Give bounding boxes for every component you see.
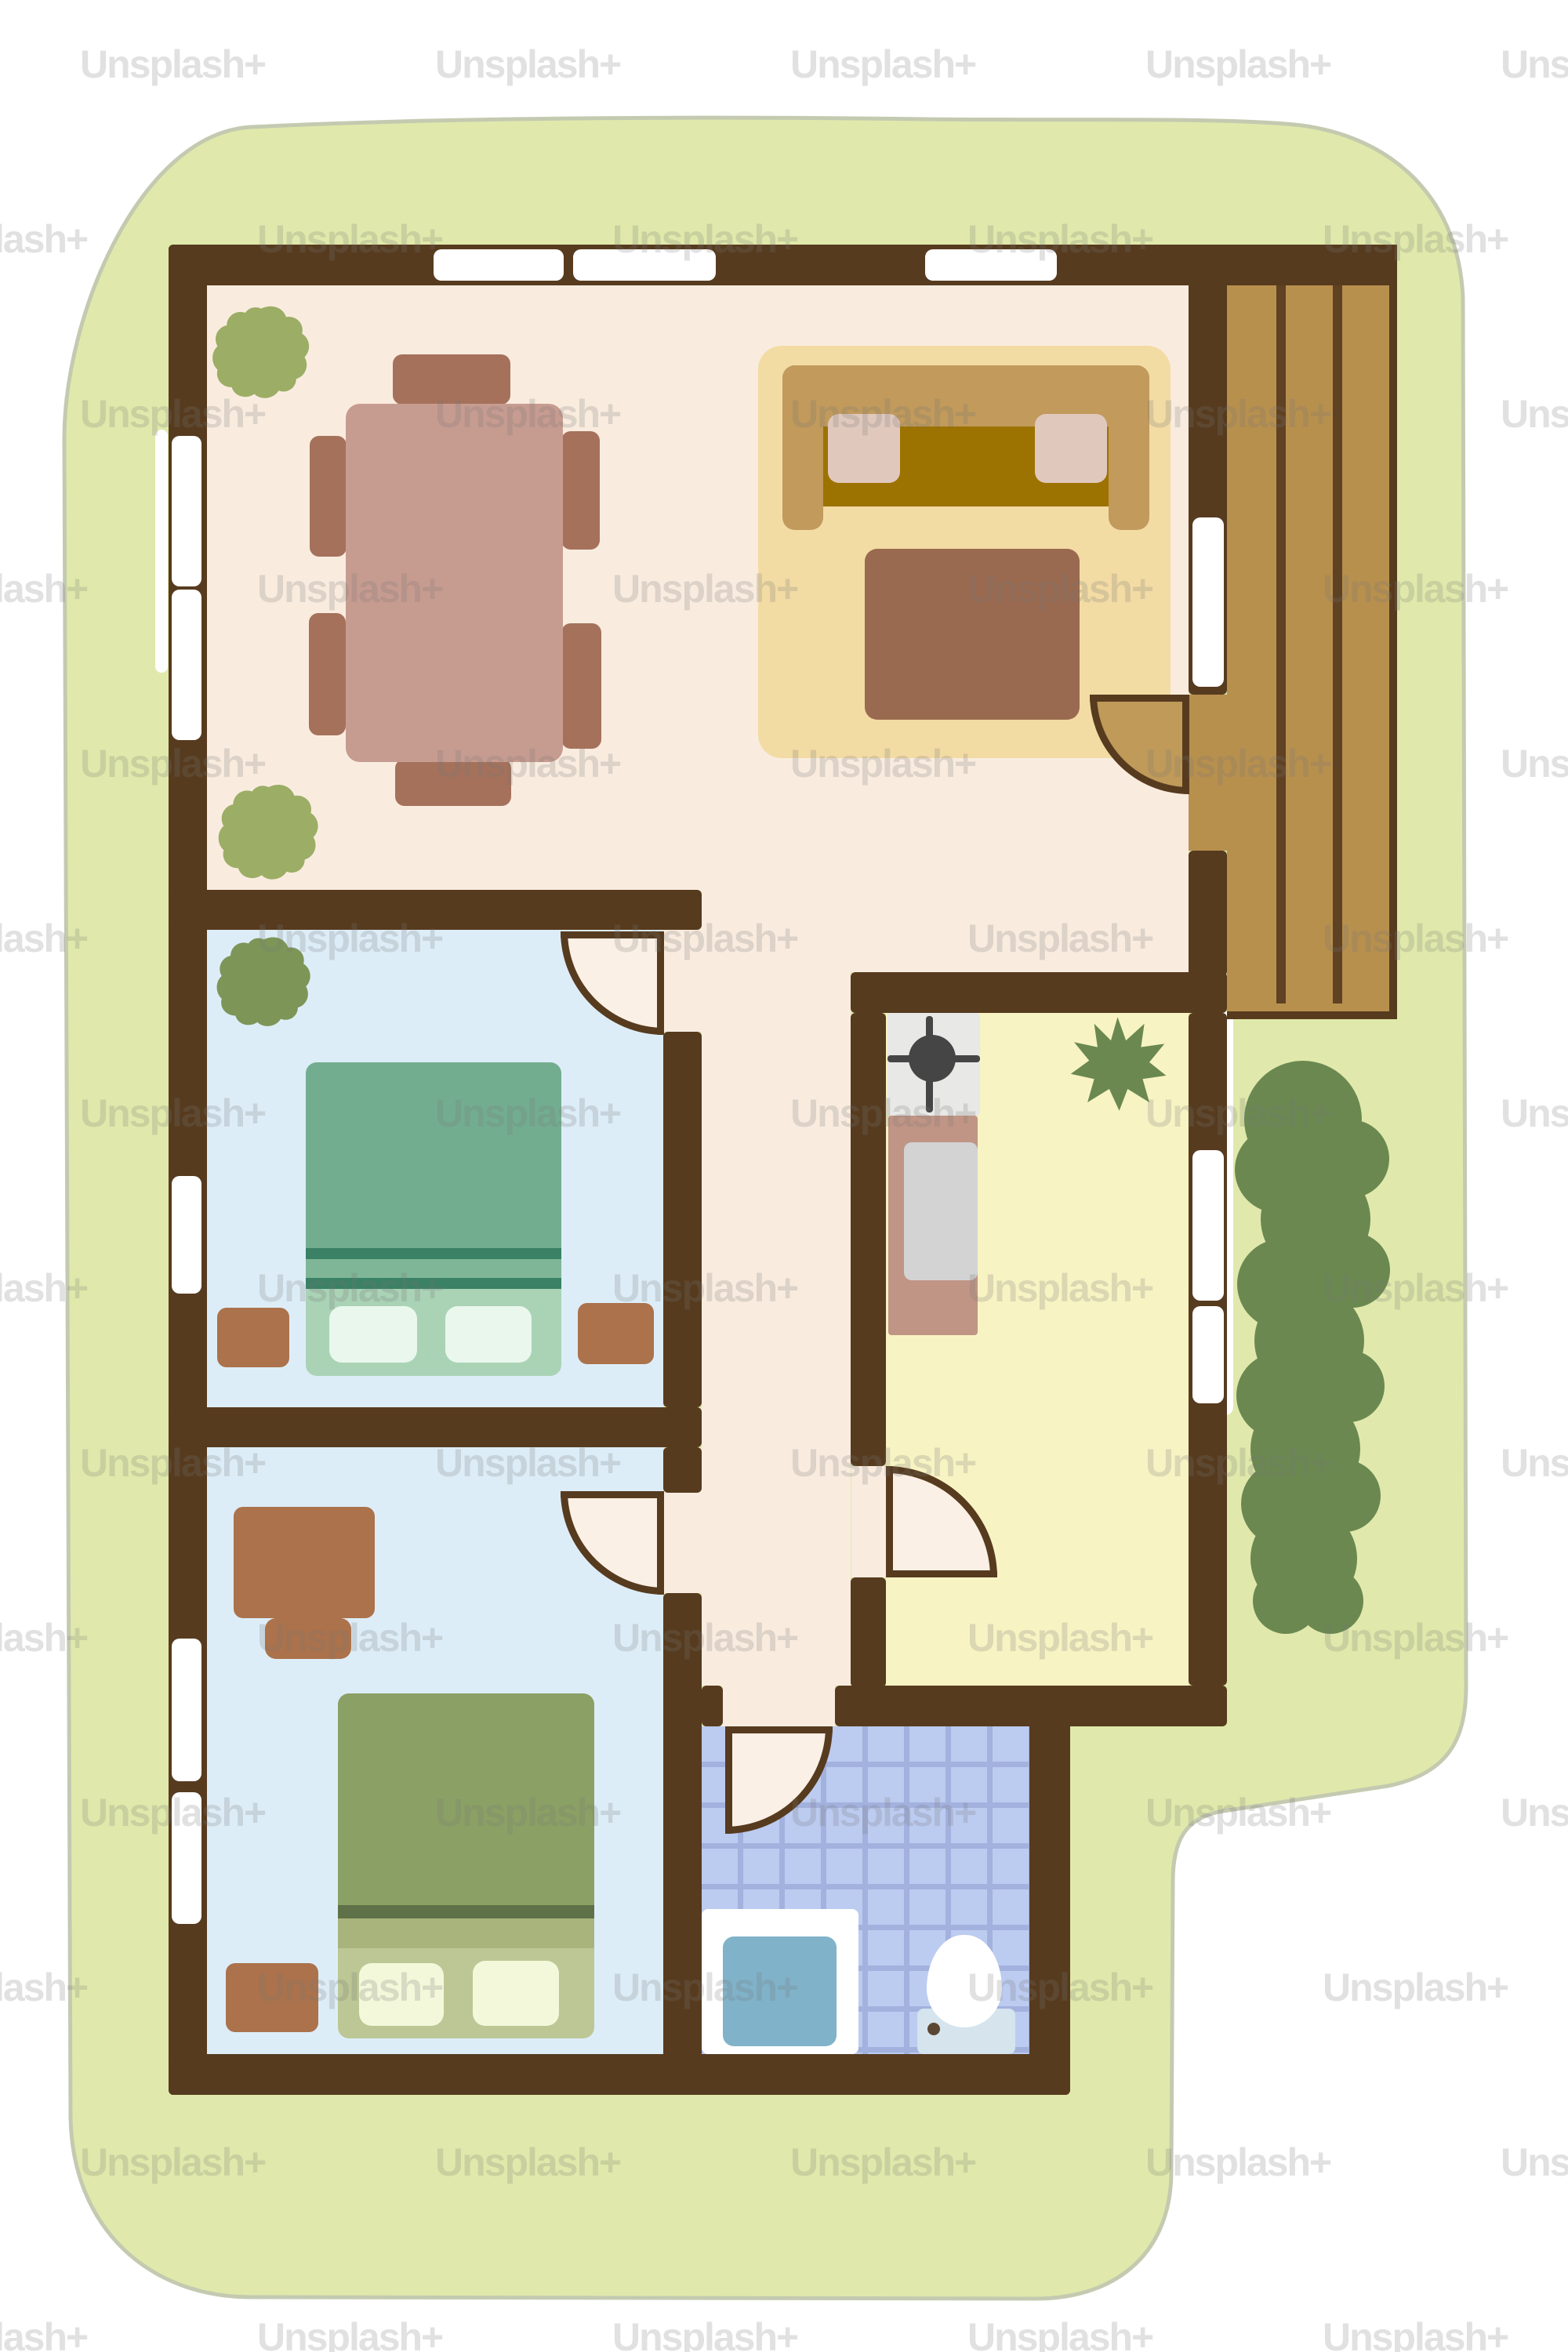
dining-chair-top <box>393 354 510 405</box>
sofa-arm-left <box>782 365 823 530</box>
sofa-cushion-right <box>1035 414 1107 483</box>
watermark: Unsplash+ <box>0 2314 87 2352</box>
dining-chair-right-1 <box>561 431 600 550</box>
watermark: Unsplash+ <box>1145 2140 1330 2185</box>
bed-pillow <box>359 1963 444 2026</box>
floor-plan-illustration: Unsplash+Unsplash+Unsplash+Unsplash+Unsp… <box>0 0 1568 2352</box>
stove <box>887 1013 980 1116</box>
watermark: Unsplash+ <box>1323 1615 1508 1661</box>
bed-pillow <box>473 1961 559 2026</box>
burner <box>909 1035 956 1082</box>
dining-chair-right-2 <box>561 623 601 749</box>
watermark: Unsplash+ <box>0 1965 87 2010</box>
watermark: Unsplash+ <box>1145 1790 1330 1835</box>
dining-plant-2 <box>216 779 321 882</box>
window-kitchen-right-1 <box>1192 1150 1224 1301</box>
sofa-arm-right <box>1109 365 1149 530</box>
dining-table <box>346 404 563 762</box>
window-dining-left-1 <box>172 436 201 586</box>
watermark: Unsplash+ <box>1501 1440 1568 1486</box>
watermark: Unsplash+ <box>790 2140 975 2185</box>
deck-plank-line <box>1333 245 1342 1004</box>
bed-band <box>338 1918 594 1948</box>
watermark: Unsplash+ <box>0 1615 87 1661</box>
bathroom-sink <box>702 1909 858 2054</box>
dining-chair-left-2 <box>309 613 346 735</box>
wall-bathroom-right <box>1029 1686 1070 2095</box>
kitchen-counter <box>888 1116 978 1335</box>
watermark: Unsplash+ <box>612 2314 797 2352</box>
deck <box>1227 245 1397 1019</box>
watermark: Unsplash+ <box>1501 2140 1568 2185</box>
hallway-floor <box>702 930 851 1686</box>
bed-stripe <box>306 1248 561 1259</box>
wall-bedroom1-hallway <box>663 1032 702 1407</box>
bed-pillow <box>329 1306 417 1363</box>
nightstand <box>217 1308 289 1367</box>
wall-kitchen-left-stub <box>851 1577 886 1687</box>
wall-bedroom2-hallway-stub <box>663 1447 702 1493</box>
bedroom-2-doorway <box>664 1491 702 1593</box>
desk-chair <box>265 1618 351 1659</box>
watermark: Unsplash+ <box>1323 1965 1508 2010</box>
bed-stripe <box>338 1905 594 1918</box>
watermark: Unsplash+ <box>1501 1790 1568 1835</box>
wall-bedroom2-bathroom <box>663 1593 702 2095</box>
window-bedroom2-left-1 <box>172 1639 201 1781</box>
window-dining-left-2 <box>172 590 201 740</box>
bathroom-basin <box>723 1936 837 2046</box>
nightstand <box>578 1303 654 1364</box>
watermark: Unsplash+ <box>80 2140 265 2185</box>
dining-chair-bottom <box>395 759 511 806</box>
bedroom-1-plant <box>210 931 318 1029</box>
watermark: Unsplash+ <box>80 42 265 87</box>
sofa-cushion-left <box>828 414 900 483</box>
watermark: Unsplash+ <box>1501 391 1568 437</box>
bed-stripe <box>306 1278 561 1289</box>
watermark: Unsplash+ <box>1501 1091 1568 1136</box>
watermark: Unsplash+ <box>0 216 87 262</box>
bathroom-doorway <box>721 1686 835 1726</box>
watermark: Unsplash+ <box>435 42 620 87</box>
bed-band <box>306 1259 561 1278</box>
wall-kitchen-top <box>851 972 1227 1013</box>
watermark: Unsplash+ <box>1501 741 1568 786</box>
deck-plank-line <box>1276 245 1286 1004</box>
desk <box>234 1507 375 1618</box>
watermark: Unsplash+ <box>790 42 975 87</box>
watermark: Unsplash+ <box>1145 42 1330 87</box>
watermark: Unsplash+ <box>967 2314 1152 2352</box>
bedroom-1-doorway <box>664 930 702 1032</box>
kitchen-doorway <box>851 1466 886 1577</box>
watermark: Unsplash+ <box>0 1265 87 1311</box>
window-kitchen-right-2 <box>1192 1306 1224 1403</box>
watermark: Unsplash+ <box>0 566 87 612</box>
wall-bedroom1-bedroom2 <box>169 1407 702 1447</box>
window-living-right <box>1192 517 1224 687</box>
deck-doorway <box>1189 695 1227 851</box>
bed-blanket <box>338 1693 594 1905</box>
watermark: Unsplash+ <box>435 2140 620 2185</box>
wall-dining-bedroom1 <box>169 890 702 930</box>
kitchen-plant <box>1065 1014 1171 1114</box>
dining-plant-1 <box>210 300 312 401</box>
wall-bathroom-top-stub <box>702 1686 723 1726</box>
bed-pillow <box>445 1306 532 1363</box>
watermark: Unsplash+ <box>1323 2314 1508 2352</box>
kitchen-sink-inset <box>904 1142 978 1280</box>
toilet-flush-button <box>927 2023 940 2035</box>
watermark: Unsplash+ <box>0 916 87 961</box>
bed-blanket <box>306 1062 561 1248</box>
tv-unit <box>865 549 1080 720</box>
wall-right-living-lower <box>1189 851 1227 976</box>
window-top-3 <box>925 249 1057 281</box>
watermark: Unsplash+ <box>257 2314 442 2352</box>
window-bedroom1-left <box>172 1176 201 1294</box>
wall-bottom <box>169 2054 1070 2095</box>
dining-chair-left-1 <box>310 436 347 557</box>
wall-kitchen-left <box>851 1013 886 1466</box>
watermark: Unsplash+ <box>1323 1265 1508 1311</box>
lawn-gap-left <box>155 430 168 673</box>
window-top-1 <box>434 249 564 281</box>
watermark: Unsplash+ <box>1501 42 1568 87</box>
nightstand <box>226 1963 318 2032</box>
window-top-2 <box>573 249 716 281</box>
window-bedroom2-left-2 <box>172 1792 201 1924</box>
